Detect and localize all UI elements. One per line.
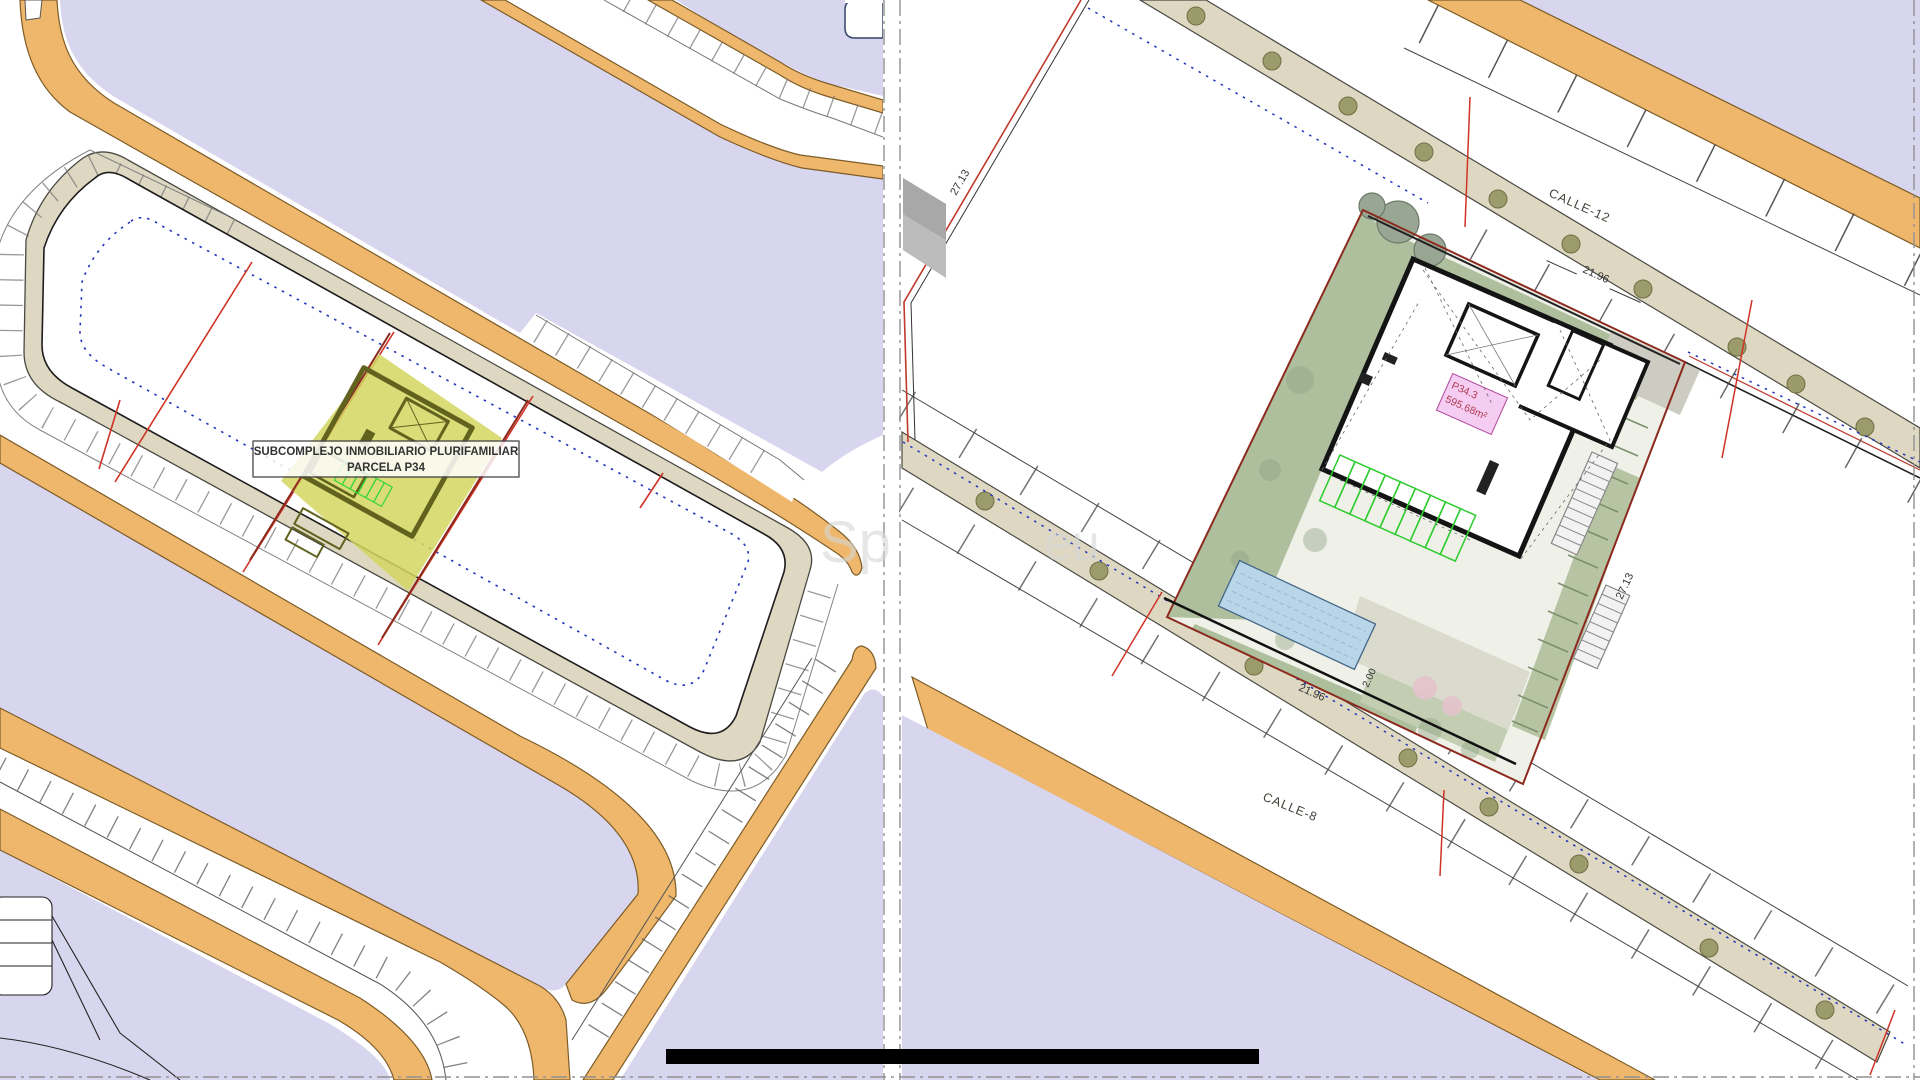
svg-text:Sp: Sp — [820, 510, 891, 575]
svg-text:SUBCOMPLEJO INMOBILIARIO PLURI: SUBCOMPLEJO INMOBILIARIO PLURIFAMILIAR — [254, 446, 519, 458]
svg-text:eu: eu — [1044, 515, 1100, 571]
svg-text:PARCELA P34: PARCELA P34 — [347, 462, 426, 474]
